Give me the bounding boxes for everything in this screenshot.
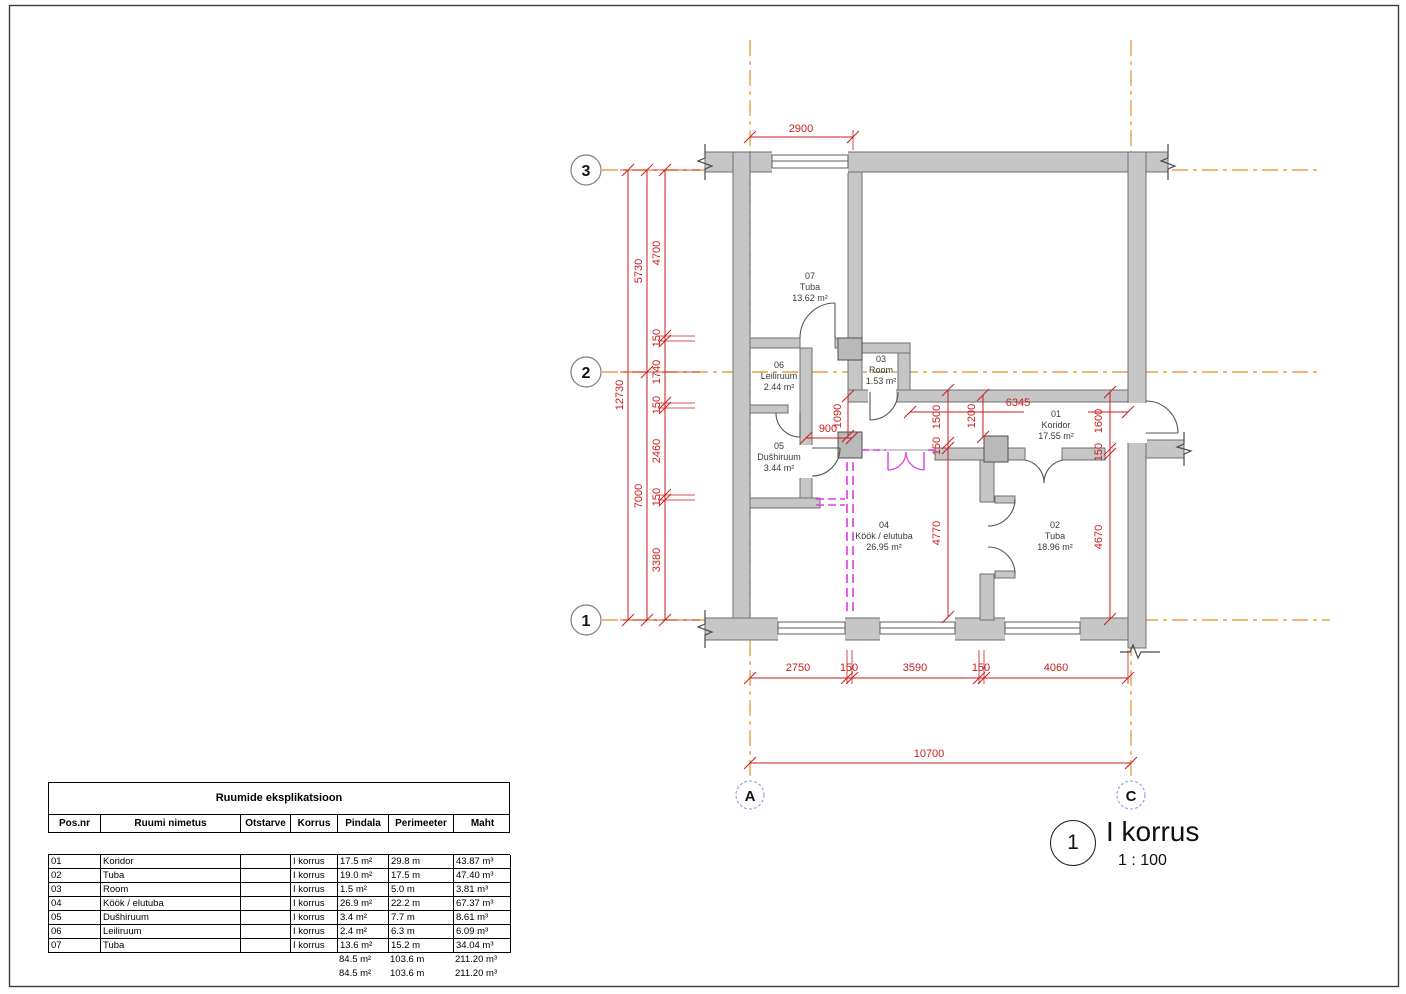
table-cell: 15.2 m: [389, 939, 454, 953]
table-cell: [241, 883, 291, 897]
door-arc-room02-b: [988, 547, 1015, 574]
table-cell: 17.5 m: [389, 869, 454, 883]
table-cell: [241, 939, 291, 953]
room-label-06: 06 Leiliruum 2.44 m²: [761, 360, 798, 392]
column-header: Pos.nr: [49, 815, 101, 832]
svg-text:26.95 m²: 26.95 m²: [866, 542, 902, 552]
svg-text:05: 05: [774, 441, 784, 451]
table-cell: I korrus: [291, 911, 338, 925]
window-opening-b1: [778, 617, 845, 641]
schedule-header-row: Pos.nr Ruumi nimetus Otstarve Korrus Pin…: [49, 815, 509, 832]
dimension-label: 150: [651, 329, 663, 347]
column-header: Ruumi nimetus: [101, 815, 241, 832]
table-cell: 5.0 m: [389, 883, 454, 897]
room-label-04: 04 Köök / elutuba 26.95 m²: [855, 520, 913, 552]
table-cell: 211.20 m³: [453, 953, 510, 967]
room-label-03: 03 Room 1.53 m²: [866, 354, 897, 386]
magenta-door-arc: [888, 452, 906, 470]
table-cell: 8.61 m³: [454, 911, 511, 925]
table-cell: I korrus: [291, 897, 338, 911]
table-row: 04Köök / elutubaI korrus26.9 m²22.2 m67.…: [49, 897, 510, 911]
table-cell: 05: [49, 911, 101, 925]
table-row: 07TubaI korrus13.6 m²15.2 m34.04 m³: [49, 939, 510, 953]
table-cell: 103.6 m: [388, 967, 453, 981]
table-cell: [290, 967, 337, 981]
table-row: 01KoridorI korrus17.5 m²29.8 m43.87 m³: [49, 855, 510, 869]
table-cell: [241, 911, 291, 925]
table-cell: 211.20 m³: [453, 967, 510, 981]
wall-room02-west-a: [980, 460, 994, 502]
svg-text:Tuba: Tuba: [800, 282, 820, 292]
dimension-label: 150: [840, 662, 858, 674]
table-cell: 02: [49, 869, 101, 883]
svg-text:02: 02: [1050, 520, 1060, 530]
grid-bubble-label: 1: [582, 613, 591, 630]
dimension-label: 3590: [903, 662, 927, 674]
wall-left: [733, 152, 750, 640]
view-number-bubble: 1: [1050, 820, 1096, 866]
dimension-label: 4670: [1093, 525, 1105, 549]
dimension-label: 4060: [1044, 662, 1068, 674]
table-row: 84.5 m²103.6 m211.20 m³: [48, 953, 510, 967]
wall-stub-right: [1146, 440, 1184, 458]
table-cell: 2.4 m²: [338, 925, 389, 939]
table-cell: 43.87 m³: [454, 855, 511, 869]
table-cell: [100, 967, 240, 981]
svg-text:18.96 m²: 18.96 m²: [1037, 542, 1073, 552]
grid-bubble-label: A: [745, 788, 756, 805]
wall-sauna-divider: [750, 405, 788, 413]
walls: [705, 152, 1184, 648]
table-cell: 03: [49, 883, 101, 897]
table-cell: [290, 953, 337, 967]
table-cell: 47.40 m³: [454, 869, 511, 883]
dimension-label: 5730: [633, 259, 645, 283]
svg-text:Dušhiruum: Dušhiruum: [757, 452, 801, 462]
dimension-label: 3380: [651, 548, 663, 572]
schedule-title: Ruumide eksplikatsioon: [49, 783, 509, 815]
table-cell: [241, 925, 291, 939]
wall-shower-south: [750, 498, 820, 508]
door-leaf-room02-a: [995, 496, 1015, 503]
table-cell: [48, 967, 100, 981]
svg-text:Room: Room: [869, 365, 893, 375]
door-opening-shower: [799, 445, 813, 478]
svg-text:Tuba: Tuba: [1045, 531, 1065, 541]
table-cell: 103.6 m: [388, 953, 453, 967]
table-cell: 22.2 m: [389, 897, 454, 911]
wall-room03-east: [898, 353, 910, 392]
dimension-label: 2900: [789, 123, 813, 135]
column-header: Pindala: [338, 815, 389, 832]
dimension-label: 12730: [614, 380, 626, 411]
table-cell: Koridor: [101, 855, 241, 869]
window-opening-top: [772, 151, 848, 173]
dimension-label: 150: [931, 437, 943, 455]
column: [838, 432, 862, 458]
dimension-label: 1500: [931, 405, 943, 429]
table-cell: I korrus: [291, 855, 338, 869]
door-leaf-room02-b: [995, 571, 1015, 578]
svg-text:3.44 m²: 3.44 m²: [764, 463, 795, 473]
table-cell: Dušhiruum: [101, 911, 241, 925]
dimension-label: 1090: [832, 404, 844, 428]
drawing-sheet: 2900 12730 5730 7000 4700 150 1740 150 2…: [0, 0, 1406, 994]
wall-sauna-east: [800, 348, 812, 505]
dimension-label: 4770: [931, 521, 943, 545]
svg-text:2.44 m²: 2.44 m²: [764, 382, 795, 392]
table-row: 06LeiliruumI korrus2.4 m²6.3 m6.09 m³: [49, 925, 510, 939]
svg-text:07: 07: [805, 271, 815, 281]
svg-text:03: 03: [876, 354, 886, 364]
svg-text:13.62 m²: 13.62 m²: [792, 293, 828, 303]
dimension-label: 150: [972, 662, 990, 674]
wall-room02-west-b: [980, 574, 994, 620]
table-cell: 1.5 m²: [338, 883, 389, 897]
table-cell: 34.04 m³: [454, 939, 511, 953]
table-cell: I korrus: [291, 925, 338, 939]
dimension-label: 10700: [914, 748, 945, 760]
table-cell: 13.6 m²: [338, 939, 389, 953]
table-cell: 7.7 m: [389, 911, 454, 925]
column-header: Otstarve: [241, 815, 291, 832]
door-arc-entrance: [1146, 401, 1178, 433]
table-cell: 06: [49, 925, 101, 939]
dimension-label: 1200: [966, 404, 978, 428]
wall-room03-north: [862, 343, 910, 353]
dimension-label: 1740: [651, 360, 663, 384]
table-cell: 84.5 m²: [337, 967, 388, 981]
table-cell: 29.8 m: [389, 855, 454, 869]
magenta-door-arc: [906, 452, 924, 470]
room-schedule: Ruumide eksplikatsioon Pos.nr Ruumi nime…: [48, 782, 510, 981]
dimension-label: 150: [651, 396, 663, 414]
door-opening-room03: [868, 389, 896, 403]
column: [838, 338, 862, 360]
grid-bubble-label: C: [1126, 788, 1137, 805]
view-title-text: I korrus: [1106, 816, 1199, 848]
svg-text:04: 04: [879, 520, 889, 530]
svg-text:Köök / elutuba: Köök / elutuba: [855, 531, 913, 541]
door-arc-sauna: [776, 413, 800, 437]
dimension-label: 4700: [651, 241, 663, 265]
svg-text:1.53 m²: 1.53 m²: [866, 376, 897, 386]
table-cell: Tuba: [101, 939, 241, 953]
table-cell: Leiliruum: [101, 925, 241, 939]
svg-text:Koridor: Koridor: [1041, 420, 1070, 430]
table-cell: [241, 869, 291, 883]
table-row: 05DušhiruumI korrus3.4 m²7.7 m8.61 m³: [49, 911, 510, 925]
view-scale: 1 : 100: [1118, 852, 1167, 870]
wall-right: [1128, 152, 1146, 648]
table-row: 02TubaI korrus19.0 m²17.5 m47.40 m³: [49, 869, 510, 883]
door-arc-shower: [812, 448, 840, 476]
table-cell: 6.09 m³: [454, 925, 511, 939]
svg-text:Leiliruum: Leiliruum: [761, 371, 798, 381]
table-row: 03RoomI korrus1.5 m²5.0 m3.81 m³: [49, 883, 510, 897]
table-cell: Room: [101, 883, 241, 897]
schedule-totals: 84.5 m²103.6 m211.20 m³84.5 m²103.6 m211…: [48, 953, 510, 981]
table-cell: 6.3 m: [389, 925, 454, 939]
table-cell: I korrus: [291, 939, 338, 953]
column-header: Korrus: [291, 815, 338, 832]
schedule-body: 01KoridorI korrus17.5 m²29.8 m43.87 m³02…: [48, 854, 510, 953]
svg-text:06: 06: [774, 360, 784, 370]
table-cell: 84.5 m²: [337, 953, 388, 967]
wall-room07-east: [848, 172, 862, 402]
dimension-label: 150: [651, 488, 663, 506]
door-opening-entrance: [1127, 403, 1147, 443]
table-cell: [241, 855, 291, 869]
table-cell: 07: [49, 939, 101, 953]
table-cell: 26.9 m²: [338, 897, 389, 911]
dimension-label: 150: [1093, 443, 1105, 461]
table-cell: 19.0 m²: [338, 869, 389, 883]
table-cell: [48, 953, 100, 967]
table-cell: 3.4 m²: [338, 911, 389, 925]
table-cell: [240, 953, 290, 967]
table-cell: [241, 897, 291, 911]
table-cell: 17.5 m²: [338, 855, 389, 869]
svg-text:17.55 m²: 17.55 m²: [1038, 431, 1074, 441]
grid-bubble-label: 3: [582, 163, 591, 180]
column-header: Perimeeter: [389, 815, 454, 832]
table-cell: Köök / elutuba: [101, 897, 241, 911]
opening-arc-corridor-b: [1044, 460, 1063, 483]
column: [984, 436, 1008, 462]
svg-text:01: 01: [1051, 409, 1061, 419]
grid-bubble-label: 2: [582, 365, 591, 382]
room-label-05: 05 Dušhiruum 3.44 m²: [757, 441, 801, 473]
table-cell: Tuba: [101, 869, 241, 883]
table-cell: [100, 953, 240, 967]
room-label-02: 02 Tuba 18.96 m²: [1037, 520, 1073, 552]
table-cell: I korrus: [291, 883, 338, 897]
table-row: 84.5 m²103.6 m211.20 m³: [48, 967, 510, 981]
column-header: Maht: [454, 815, 511, 832]
schedule-header: Ruumide eksplikatsioon Pos.nr Ruumi nime…: [48, 782, 510, 833]
table-cell: I korrus: [291, 869, 338, 883]
dimension-label: 2460: [651, 439, 663, 463]
table-cell: 04: [49, 897, 101, 911]
window-opening-b3: [1005, 617, 1080, 641]
table-cell: [240, 967, 290, 981]
table-cell: 3.81 m³: [454, 883, 511, 897]
wall-room07-south-a: [750, 338, 800, 348]
dimension-label: 7000: [633, 484, 645, 508]
table-cell: 01: [49, 855, 101, 869]
table-cell: 67.37 m³: [454, 897, 511, 911]
dimension-label: 2750: [786, 662, 810, 674]
dimension-label: 1600: [1093, 409, 1105, 433]
room-label-07: 07 Tuba 13.62 m²: [792, 271, 828, 303]
opening-arc-corridor-a: [1025, 460, 1044, 483]
door-arc-room07: [800, 303, 835, 338]
